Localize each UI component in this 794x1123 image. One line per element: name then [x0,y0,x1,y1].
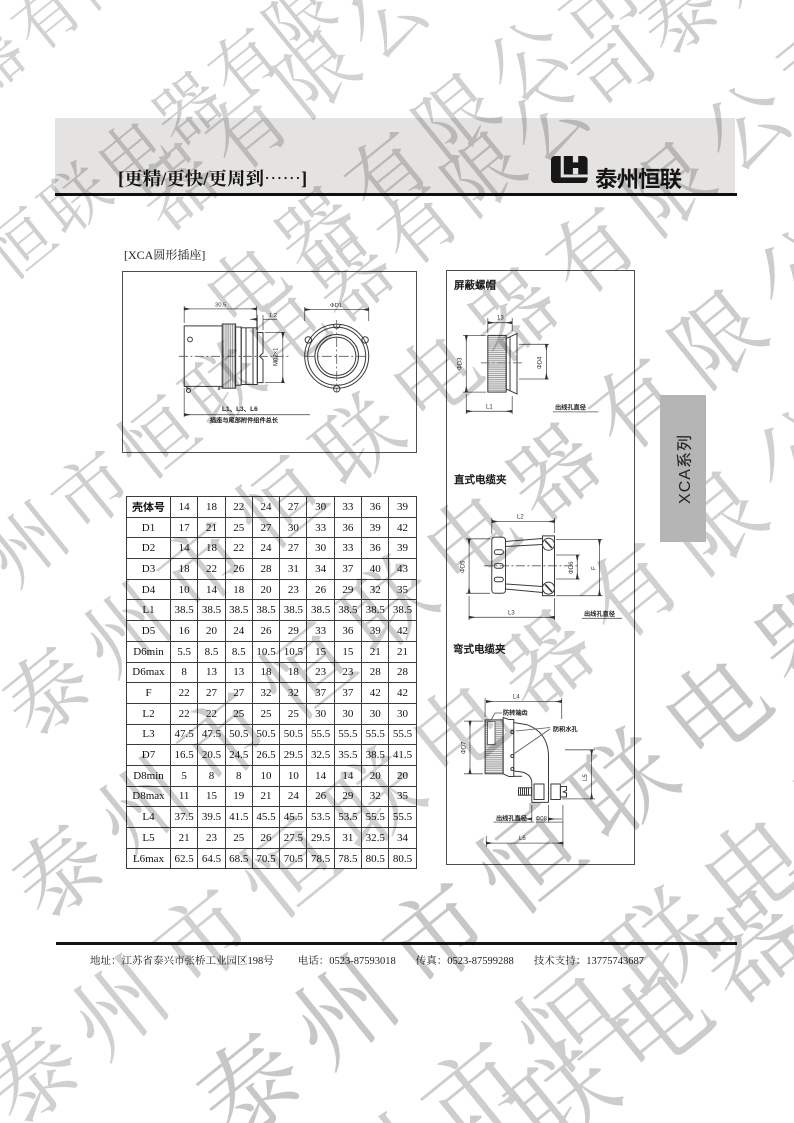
svg-text:ΦD6: ΦD6 [569,561,575,574]
svg-text:出线孔直径: 出线孔直径 [496,815,528,823]
svg-text:防积水孔: 防积水孔 [553,726,579,734]
svg-text:M02×1: M02×1 [274,347,280,366]
svg-text:出线孔直径: 出线孔直径 [584,610,616,618]
svg-text:ΦD5: ΦD5 [461,560,467,573]
svg-text:ΦD4: ΦD4 [538,356,544,369]
svg-text:L6: L6 [519,836,526,842]
svg-text:L5: L5 [583,774,589,781]
svg-text:ΦD3: ΦD3 [458,357,464,370]
svg-text:屏蔽螺帽: 屏蔽螺帽 [453,279,496,292]
svg-text:1.2: 1.2 [269,313,277,319]
svg-text:出线孔直径: 出线孔直径 [555,404,587,412]
svg-text:L3: L3 [508,611,515,617]
svg-text:防转端齿: 防转端齿 [503,709,529,717]
svg-text:30.5: 30.5 [215,303,226,309]
svg-text:直式电缆夹: 直式电缆夹 [454,473,507,486]
svg-text:L2: L2 [517,515,524,521]
svg-text:L1: L1 [486,405,493,411]
svg-text:ΦD1: ΦD1 [330,303,342,309]
svg-text:Φ08: Φ08 [536,817,548,823]
svg-text:插座与尾部附件组件总长: 插座与尾部附件组件总长 [210,417,279,425]
svg-text:L1、L3、L6: L1、L3、L6 [222,406,258,413]
svg-text:ΦD7: ΦD7 [462,741,468,754]
svg-text:L4: L4 [513,695,520,701]
svg-text:F: F [591,566,597,570]
svg-text:弯式电缆夹: 弯式电缆夹 [453,643,506,656]
svg-text:13: 13 [497,316,504,322]
